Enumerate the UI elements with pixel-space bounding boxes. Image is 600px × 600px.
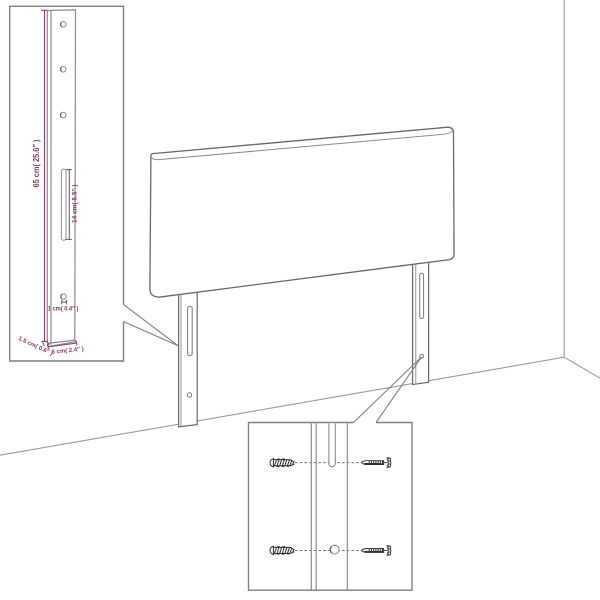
svg-text:14 cm( 5.5″ ): 14 cm( 5.5″ ) bbox=[71, 184, 78, 223]
svg-text:65 cm( 25.6″ ): 65 cm( 25.6″ ) bbox=[31, 139, 41, 187]
svg-text:1 cm( 0.4″ ): 1 cm( 0.4″ ) bbox=[48, 306, 79, 312]
